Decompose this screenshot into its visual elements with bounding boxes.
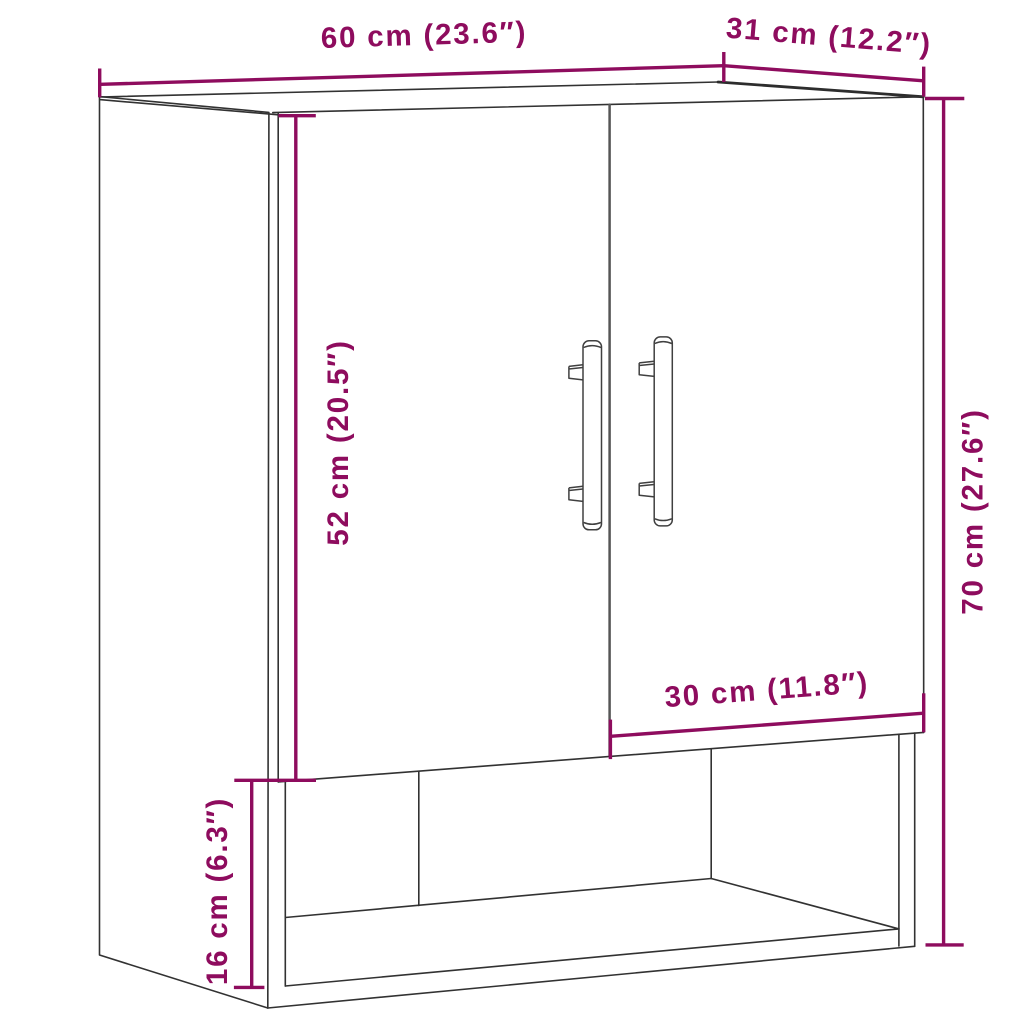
svg-text:30 cm (11.8″): 30 cm (11.8″) <box>663 666 870 714</box>
svg-text:52 cm (20.5″): 52 cm (20.5″) <box>322 339 355 545</box>
svg-text:31 cm (12.2″): 31 cm (12.2″) <box>725 12 933 62</box>
svg-text:60 cm (23.6″): 60 cm (23.6″) <box>320 16 527 55</box>
svg-text:70 cm (27.6″): 70 cm (27.6″) <box>957 408 990 614</box>
svg-text:16 cm (6.3″): 16 cm (6.3″) <box>201 797 234 985</box>
